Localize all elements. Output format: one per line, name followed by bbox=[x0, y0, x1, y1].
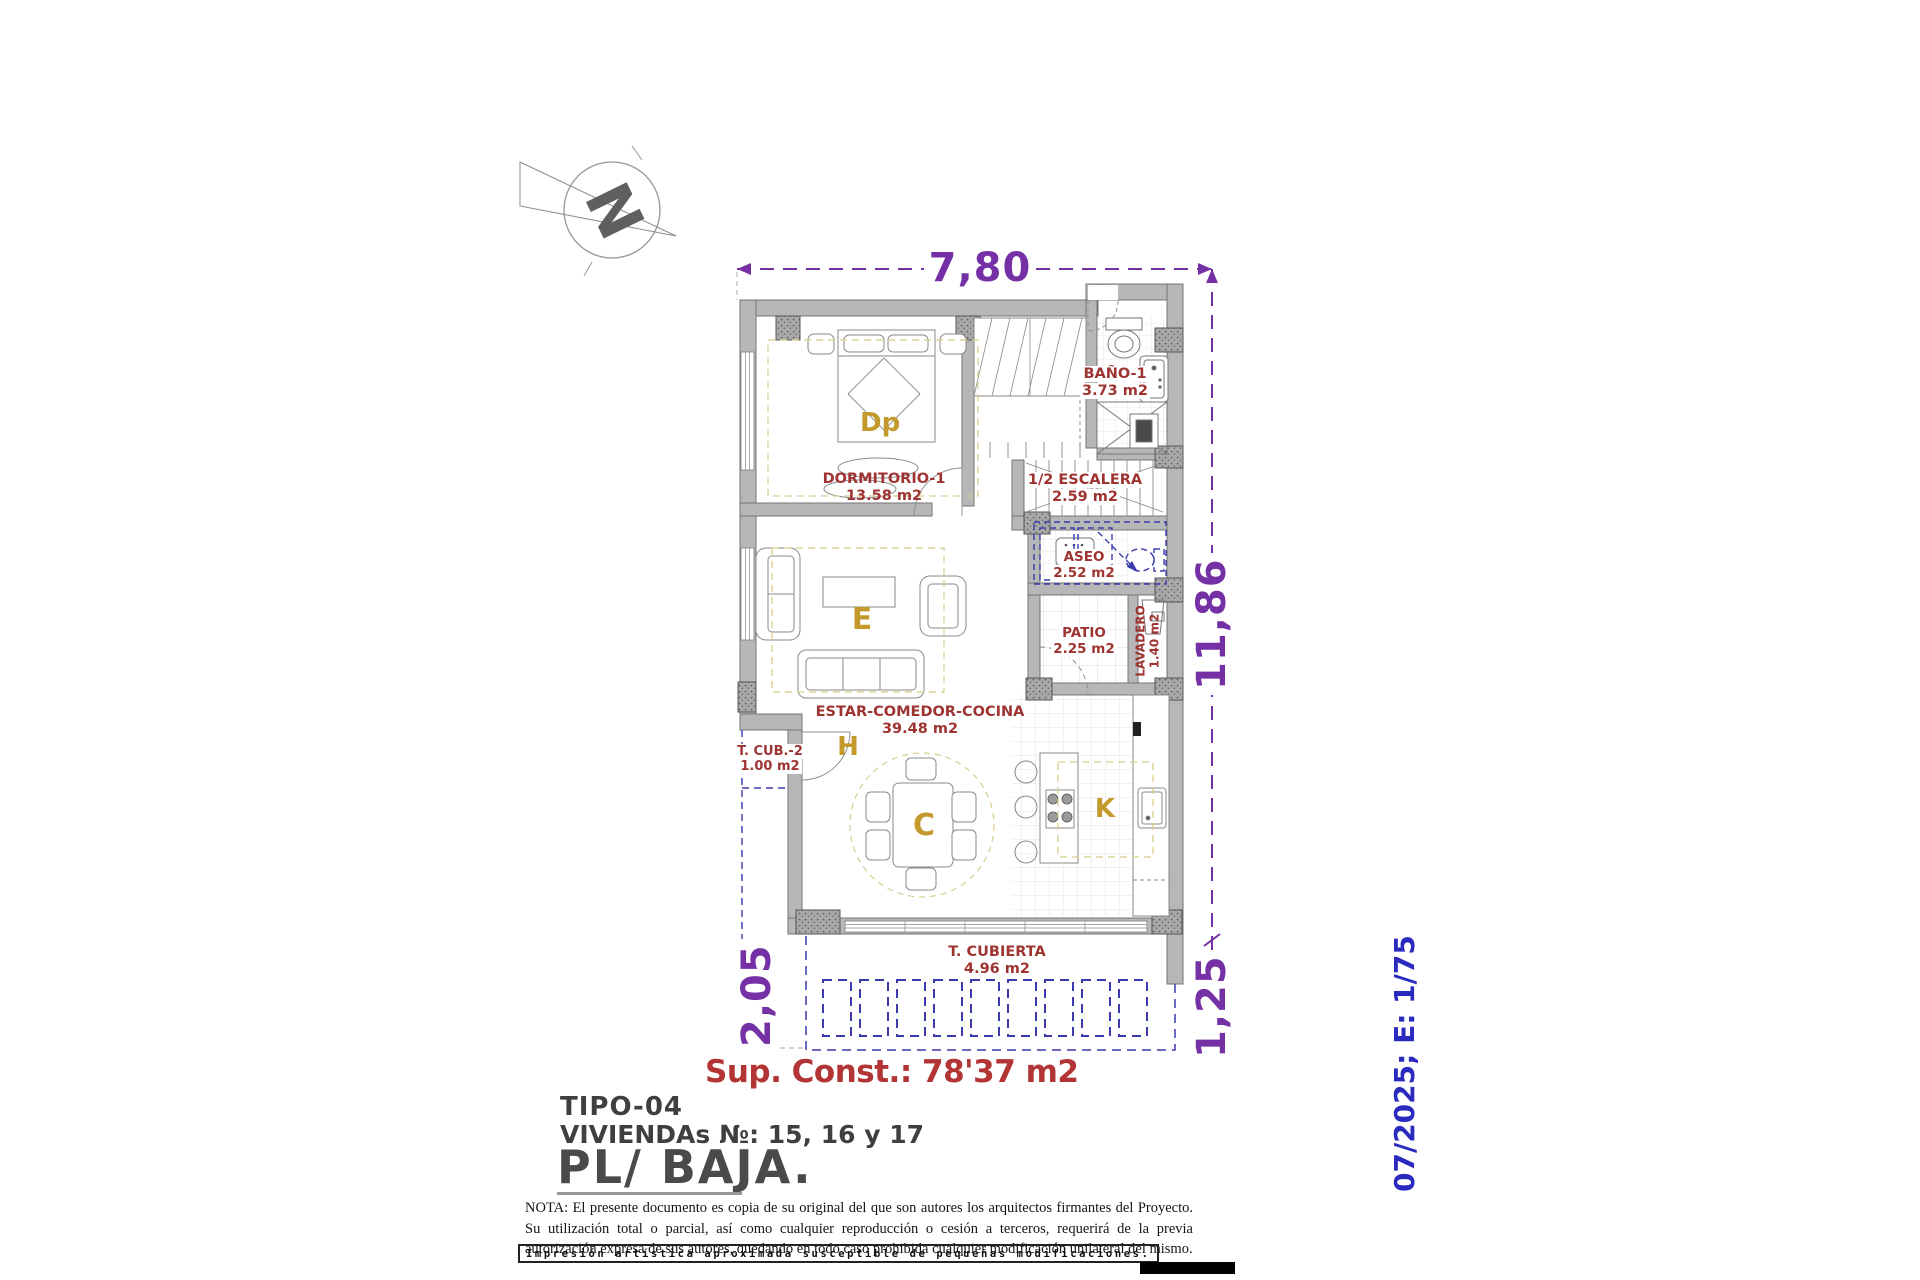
room-label-dormitorio: DORMITORIO-113.58 m2 bbox=[809, 471, 959, 504]
title-planta: PL/ BAJA. bbox=[557, 1140, 813, 1194]
date-scale-stamp: 07/2025; E: 1/75 bbox=[1388, 935, 1421, 1192]
sheet-edge-bar bbox=[1140, 1262, 1235, 1274]
dimension-width-top: 7,80 bbox=[905, 245, 1055, 291]
room-label-lavadero: LAVADERO1.40 m2 bbox=[1135, 594, 1169, 689]
pergola-beams bbox=[823, 980, 1147, 1036]
room-letter-living: E bbox=[842, 602, 882, 637]
room-label-escalera: 1/2 ESCALERA2.59 m2 bbox=[1020, 472, 1150, 505]
title-rule bbox=[557, 1192, 742, 1195]
room-label-tcubierta: T. CUBIERTA4.96 m2 bbox=[927, 944, 1067, 977]
dimension-terrace-left: 2,05 bbox=[734, 942, 780, 1052]
room-label-bano: BAÑO-13.73 m2 bbox=[1055, 366, 1175, 399]
room-letter-hall: H bbox=[828, 732, 868, 762]
dimension-height-right: 11,86 bbox=[1189, 555, 1235, 695]
dimension-terrace-right: 1,25 bbox=[1189, 953, 1235, 1063]
room-letter-bedroom: Dp bbox=[860, 408, 900, 438]
built-area-summary: Sup. Const.: 78'37 m2 bbox=[705, 1054, 1078, 1090]
title-tipo: TIPO-04 bbox=[560, 1092, 683, 1122]
room-label-patio: PATIO2.25 m2 bbox=[1039, 626, 1129, 657]
disclaimer-bar: Impresión artística aproximada susceptib… bbox=[518, 1244, 1159, 1263]
room-letter-kitchen: K bbox=[1085, 794, 1125, 824]
room-label-aseo: ASEO2.52 m2 bbox=[1044, 550, 1124, 581]
compass-north-letter: N bbox=[570, 172, 658, 251]
room-letter-dining: C bbox=[904, 808, 944, 843]
floor-plan-sheet: N bbox=[0, 0, 1920, 1280]
room-label-tcub2: T. CUB.-21.00 m2 bbox=[730, 745, 810, 775]
north-compass: N bbox=[520, 146, 676, 276]
